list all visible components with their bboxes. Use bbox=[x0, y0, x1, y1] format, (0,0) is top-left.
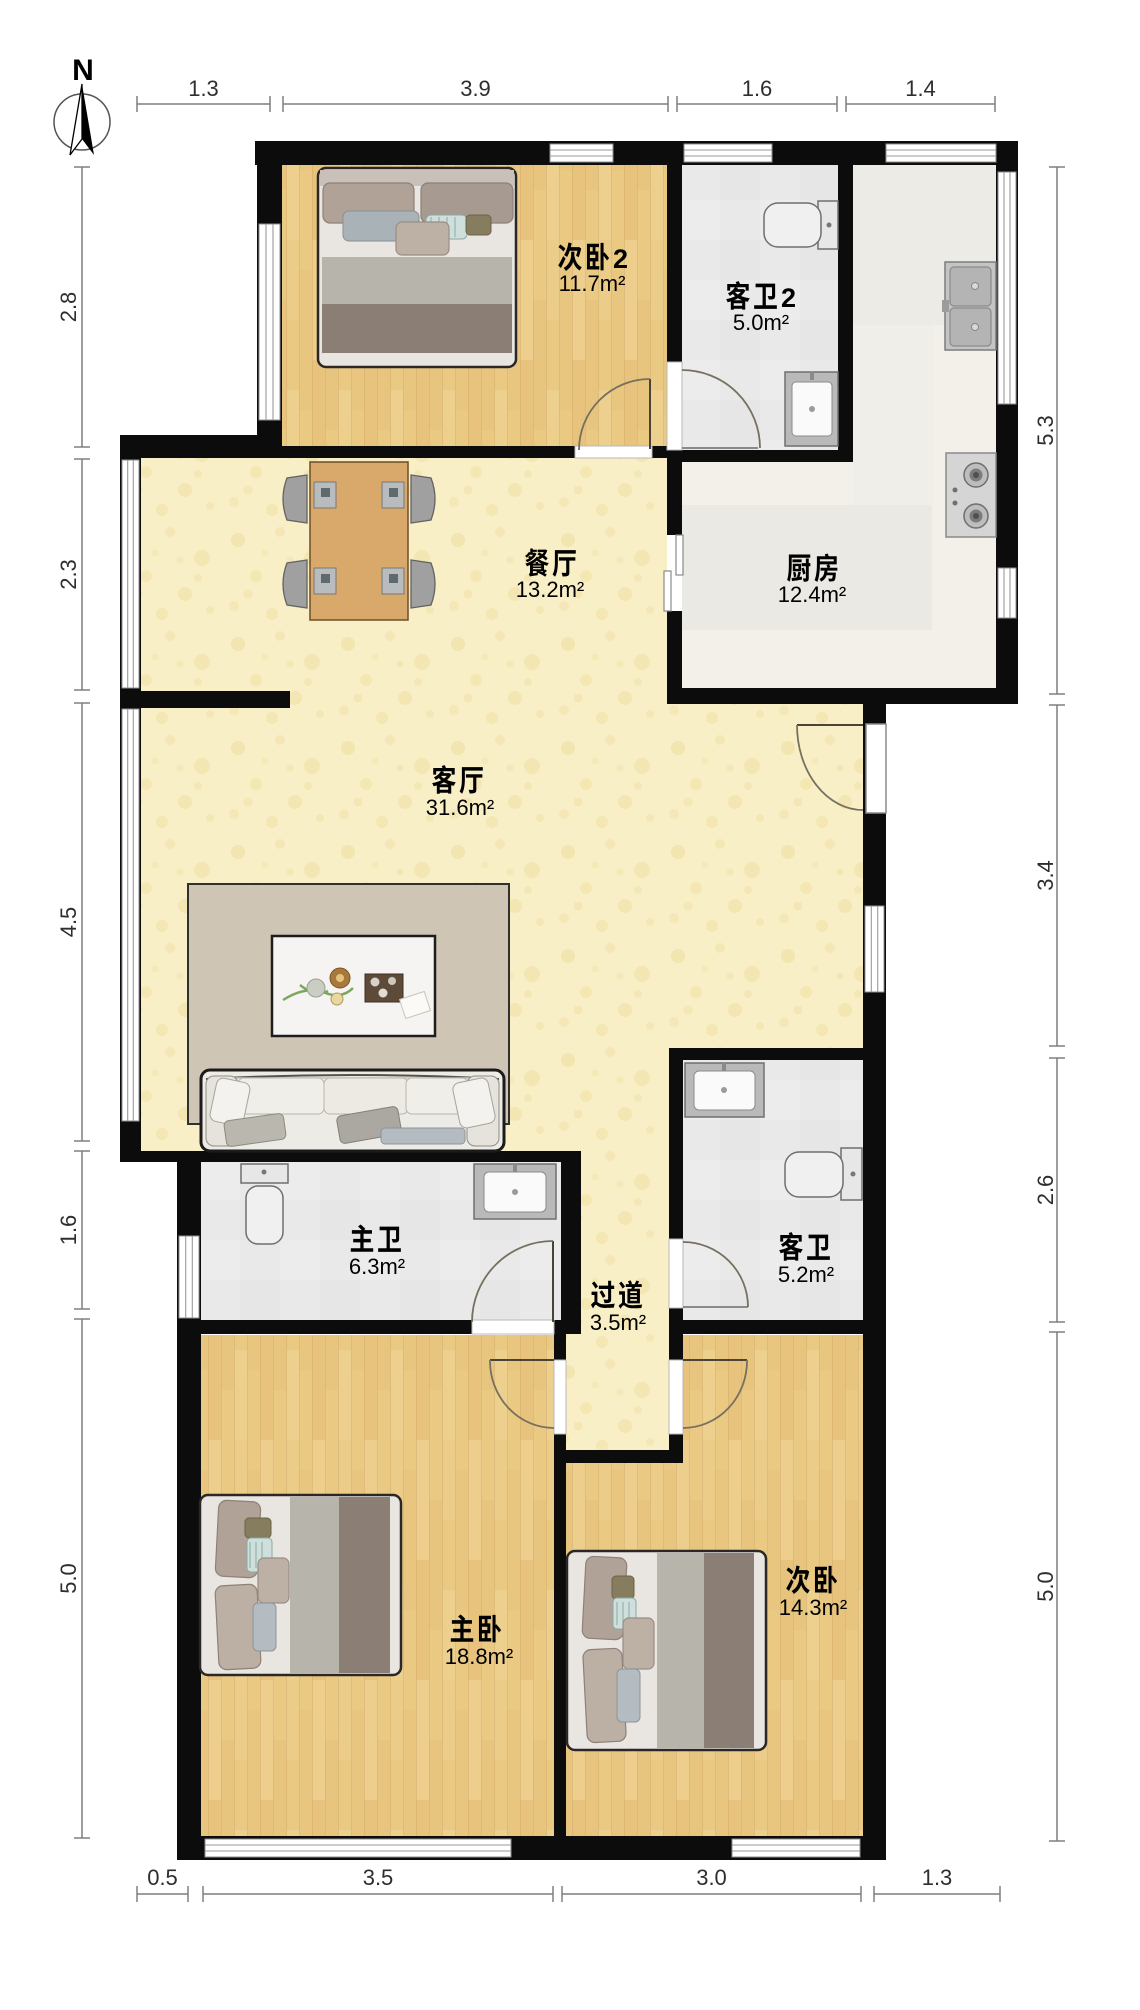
svg-text:1.4: 1.4 bbox=[905, 76, 936, 101]
svg-text:N: N bbox=[72, 54, 94, 87]
svg-text:5.0m²: 5.0m² bbox=[733, 310, 789, 335]
svg-text:5.2m²: 5.2m² bbox=[778, 1262, 834, 1287]
svg-text:1.6: 1.6 bbox=[56, 1215, 81, 1246]
svg-text:2.6: 2.6 bbox=[1033, 1175, 1058, 1206]
svg-text:13.2m²: 13.2m² bbox=[516, 577, 584, 602]
svg-text:1.3: 1.3 bbox=[922, 1865, 953, 1890]
svg-text:2: 2 bbox=[613, 244, 628, 274]
svg-text:3.5m²: 3.5m² bbox=[590, 1310, 646, 1335]
svg-text:2.8: 2.8 bbox=[56, 292, 81, 323]
svg-text:2: 2 bbox=[781, 283, 796, 313]
svg-text:12.4m²: 12.4m² bbox=[778, 582, 846, 607]
svg-text:3.4: 3.4 bbox=[1033, 860, 1058, 891]
svg-text:11.7m²: 11.7m² bbox=[559, 271, 626, 296]
svg-text:4.5: 4.5 bbox=[56, 907, 81, 938]
svg-text:6.3m²: 6.3m² bbox=[349, 1254, 405, 1279]
svg-text:5.0: 5.0 bbox=[56, 1563, 81, 1594]
svg-text:5.3: 5.3 bbox=[1033, 415, 1058, 446]
svg-text:3.5: 3.5 bbox=[363, 1865, 394, 1890]
svg-text:31.6m²: 31.6m² bbox=[426, 795, 494, 820]
svg-text:2.3: 2.3 bbox=[56, 559, 81, 590]
svg-text:5.0: 5.0 bbox=[1033, 1571, 1058, 1602]
svg-text:18.8m²: 18.8m² bbox=[445, 1644, 513, 1669]
svg-text:1.6: 1.6 bbox=[742, 76, 773, 101]
svg-text:3.0: 3.0 bbox=[696, 1865, 727, 1890]
svg-text:14.3m²: 14.3m² bbox=[779, 1595, 847, 1620]
svg-text:3.9: 3.9 bbox=[460, 76, 491, 101]
svg-text:1.3: 1.3 bbox=[188, 76, 219, 101]
svg-text:0.5: 0.5 bbox=[147, 1865, 178, 1890]
